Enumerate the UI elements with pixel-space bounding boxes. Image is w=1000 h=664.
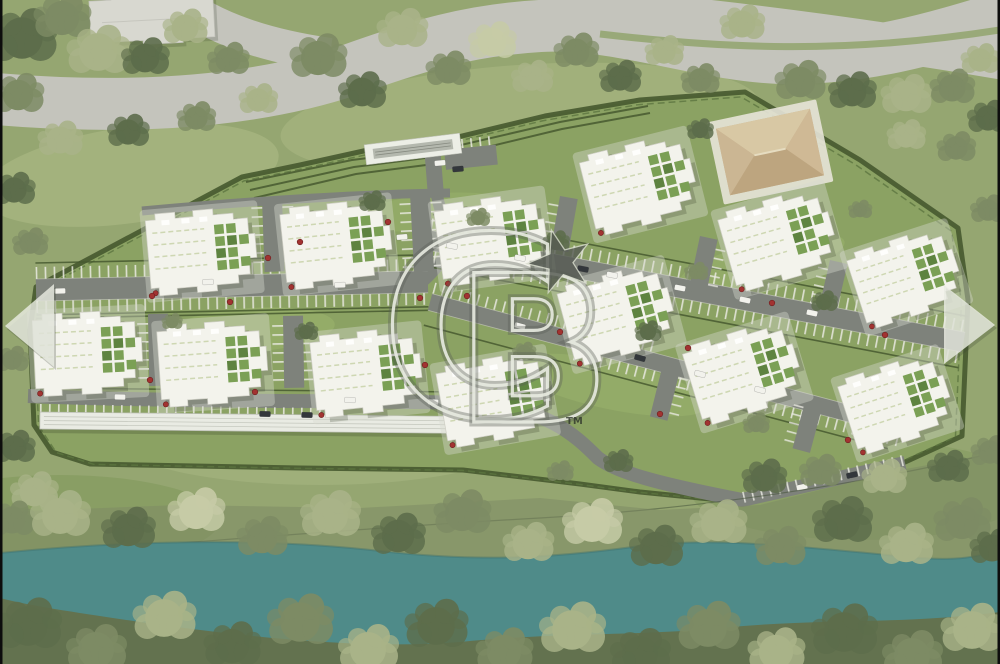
watermark-trademark: TM [566,416,583,427]
building [151,313,275,414]
watermark-letter-b: B [455,233,611,471]
photo-viewer: C C B B TM [0,0,1000,664]
building [139,200,265,303]
left-edge-bar [0,0,3,664]
listing-photo: C C B B TM [0,0,1000,664]
